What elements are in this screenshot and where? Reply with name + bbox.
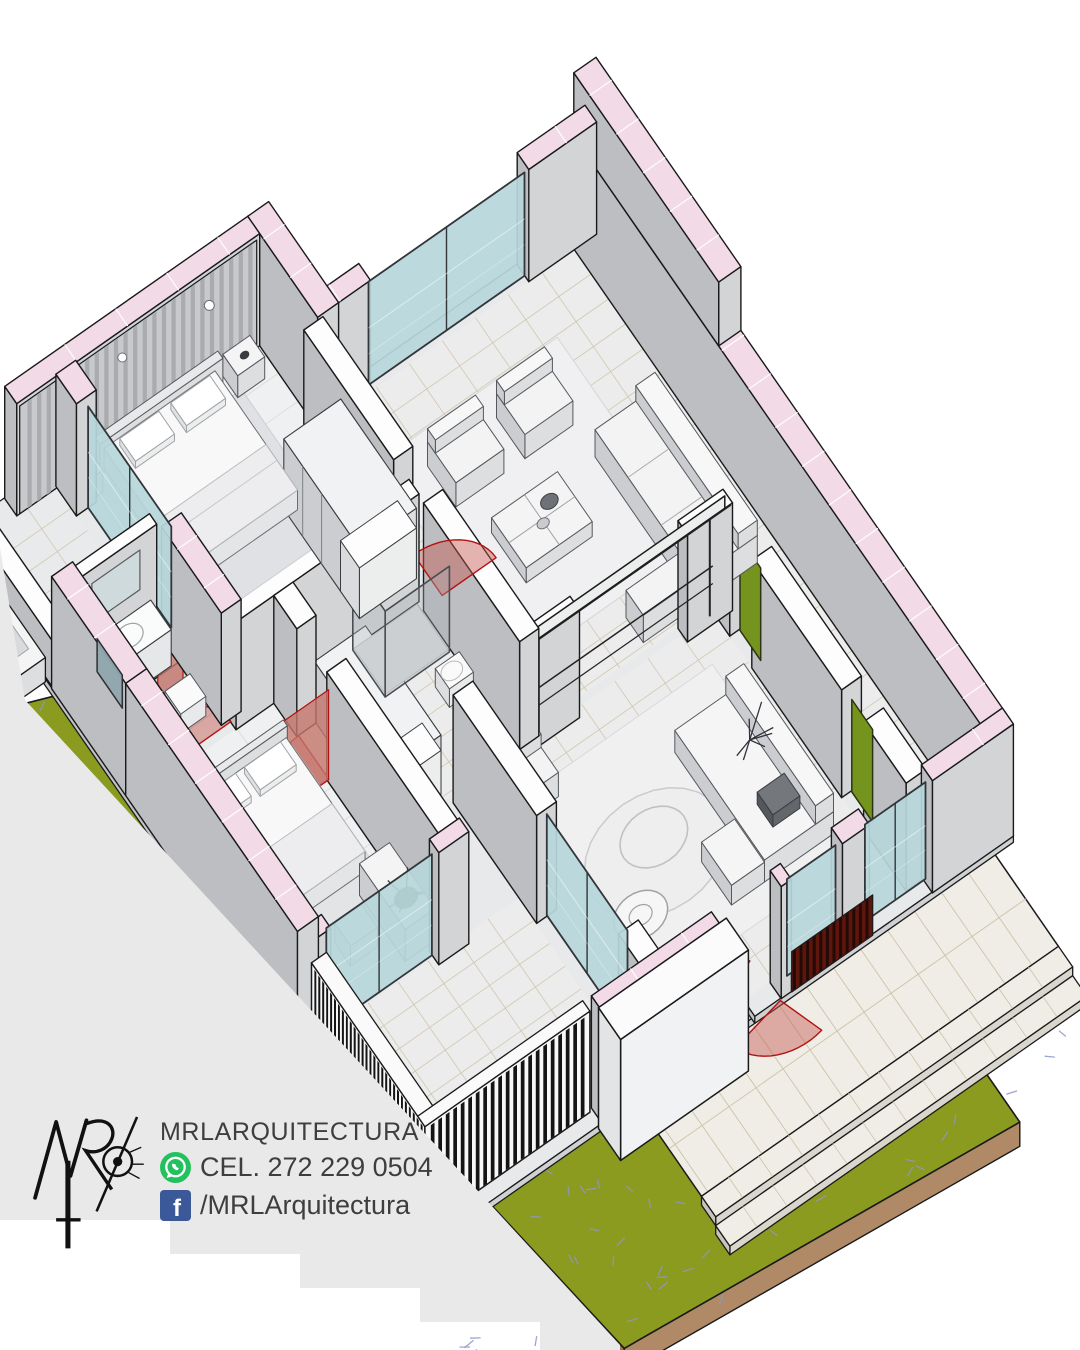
phone-row: CEL. 272 229 0504 [160, 1152, 433, 1183]
facebook-icon: f [160, 1190, 191, 1221]
svg-text:f: f [173, 1195, 182, 1221]
whatsapp-icon [160, 1152, 191, 1183]
brand-name: MRLARQUITECTURA [160, 1118, 419, 1147]
architectural-rendering-page: MRLARQUITECTURA CEL. 272 229 0504 f /MRL… [0, 0, 1080, 1350]
facebook-handle: /MRLArquitectura [200, 1190, 410, 1221]
mrl-logo [30, 1106, 148, 1256]
phone-number: CEL. 272 229 0504 [200, 1152, 433, 1183]
brand-footer: MRLARQUITECTURA CEL. 272 229 0504 f /MRL… [30, 1102, 590, 1302]
facebook-row: f /MRLArquitectura [160, 1190, 410, 1221]
